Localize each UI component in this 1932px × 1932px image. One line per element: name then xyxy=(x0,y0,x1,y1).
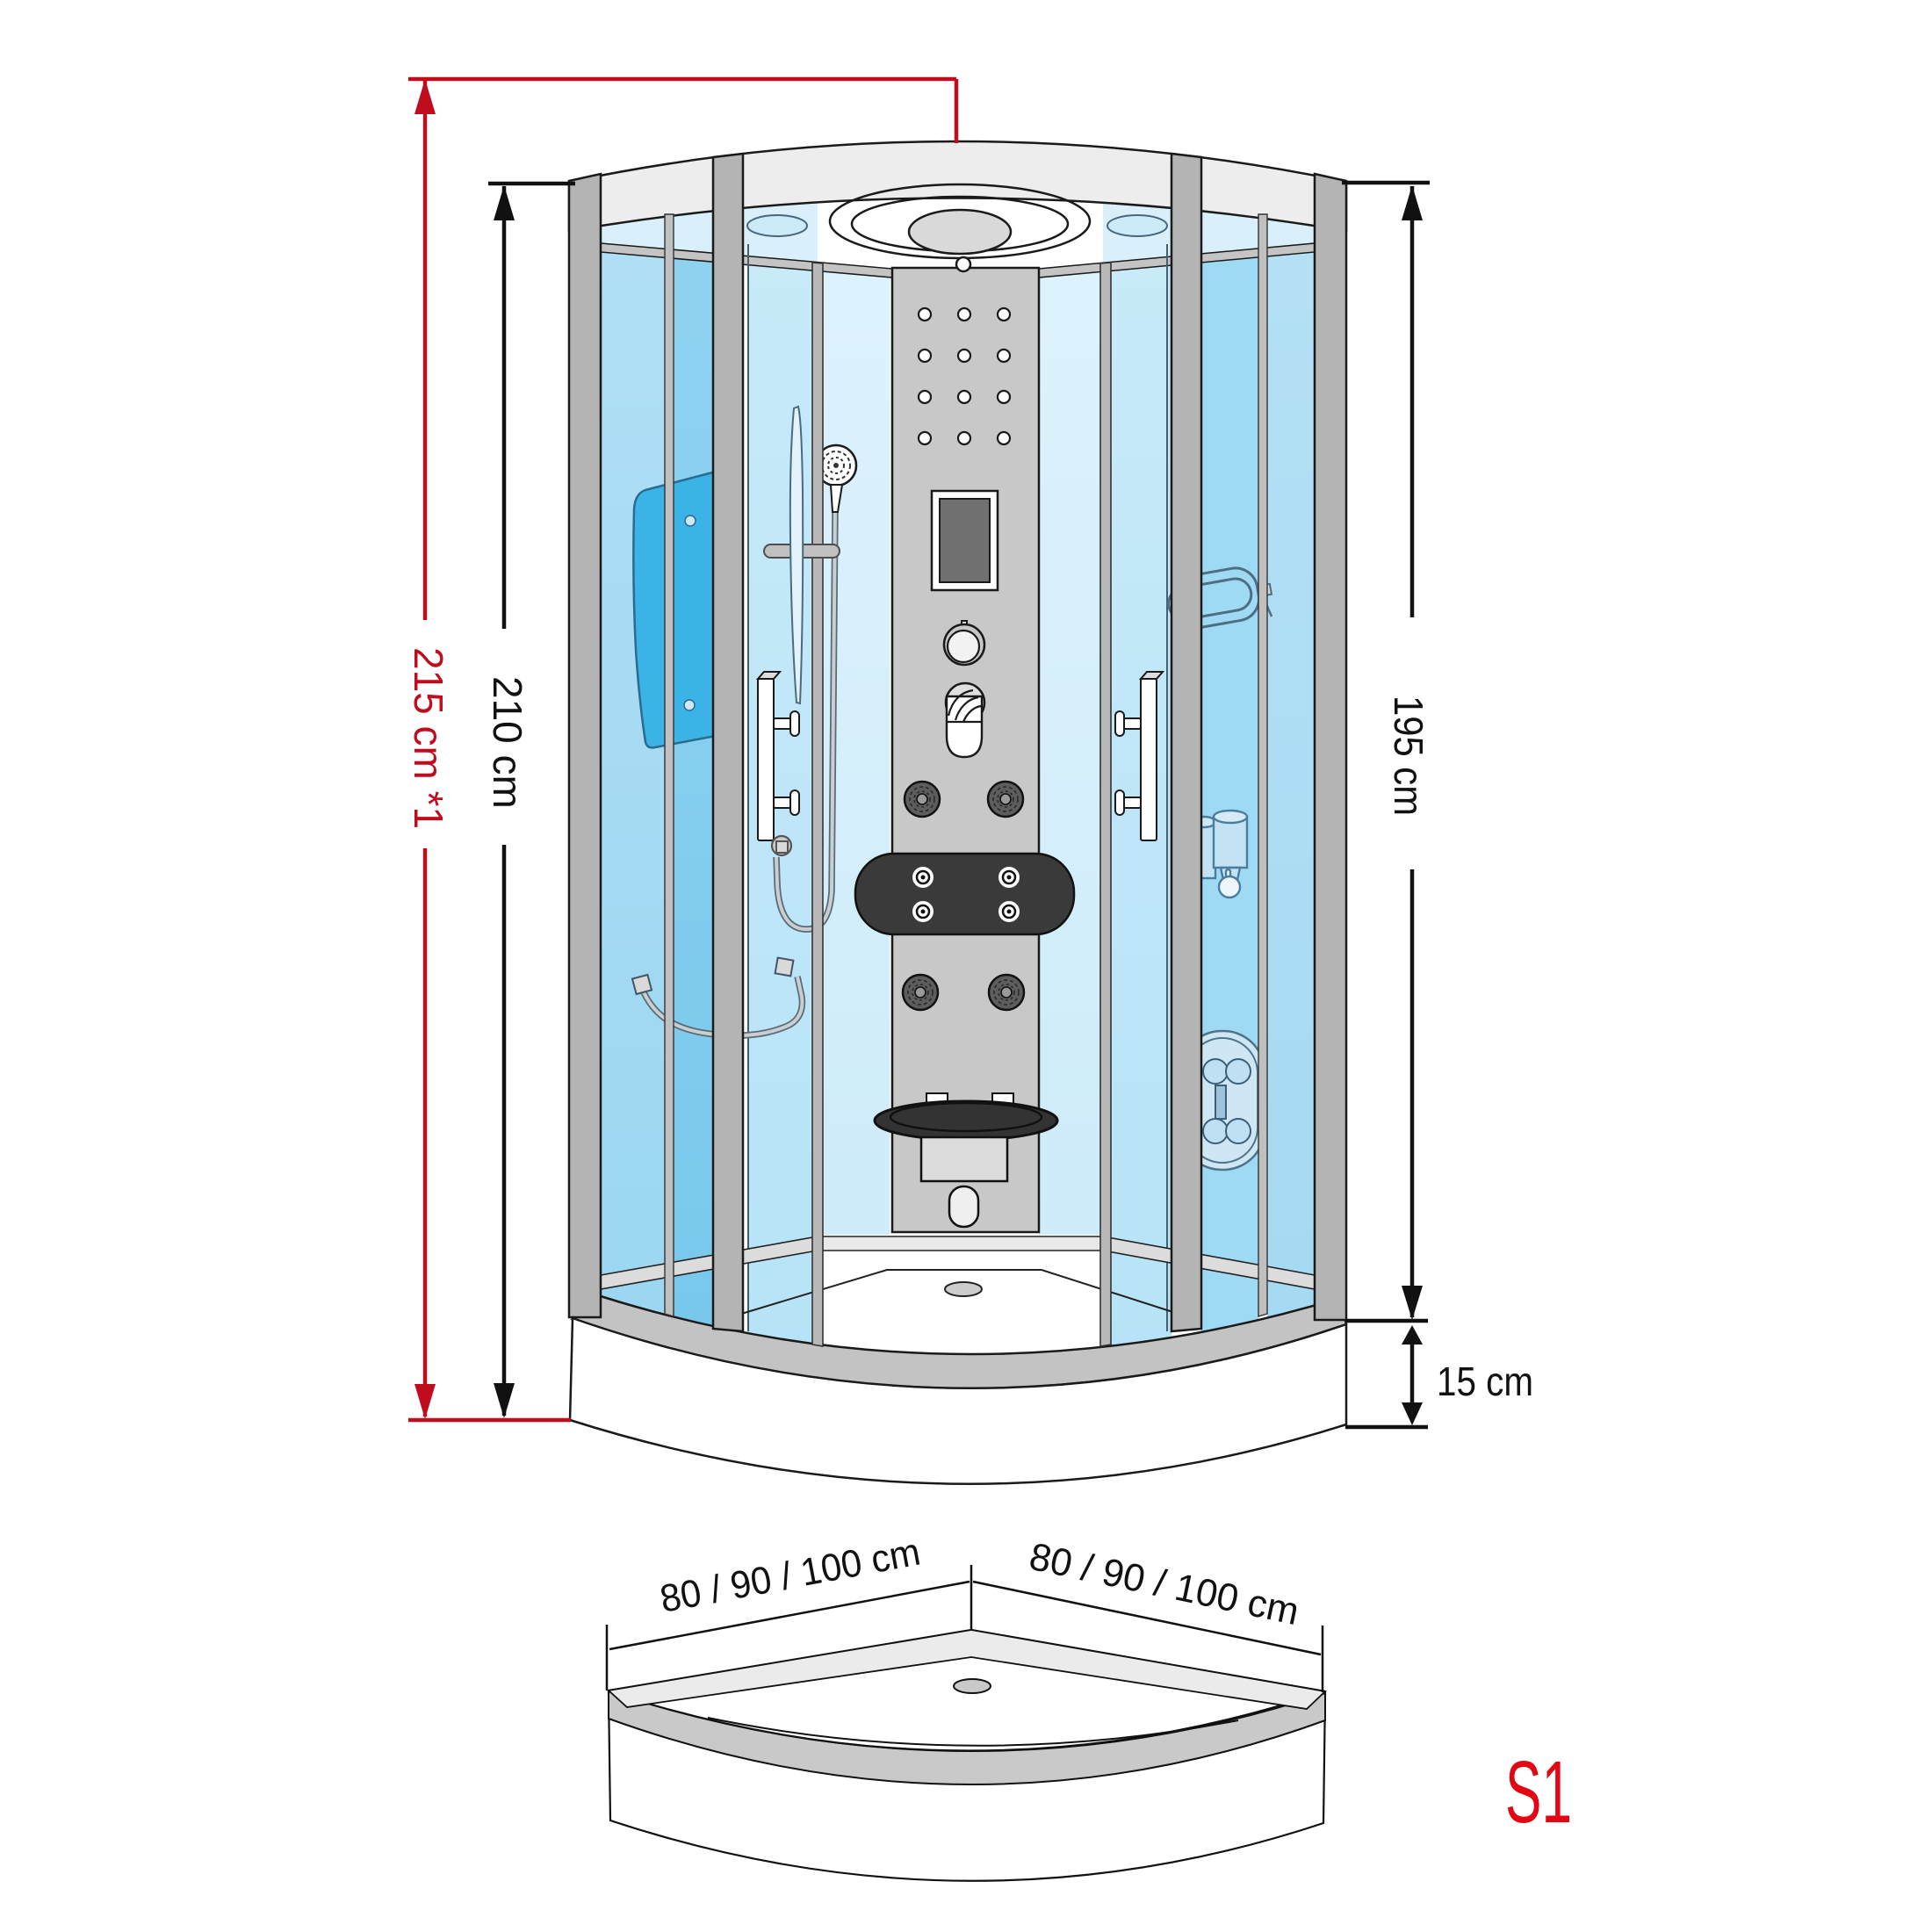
svg-text:210 cm: 210 cm xyxy=(485,676,530,809)
svg-text:S1: S1 xyxy=(1505,1743,1572,1842)
svg-text:195 cm: 195 cm xyxy=(1386,696,1431,816)
svg-text:15 cm: 15 cm xyxy=(1437,1359,1533,1404)
svg-text:215 cm *1: 215 cm *1 xyxy=(406,647,451,829)
